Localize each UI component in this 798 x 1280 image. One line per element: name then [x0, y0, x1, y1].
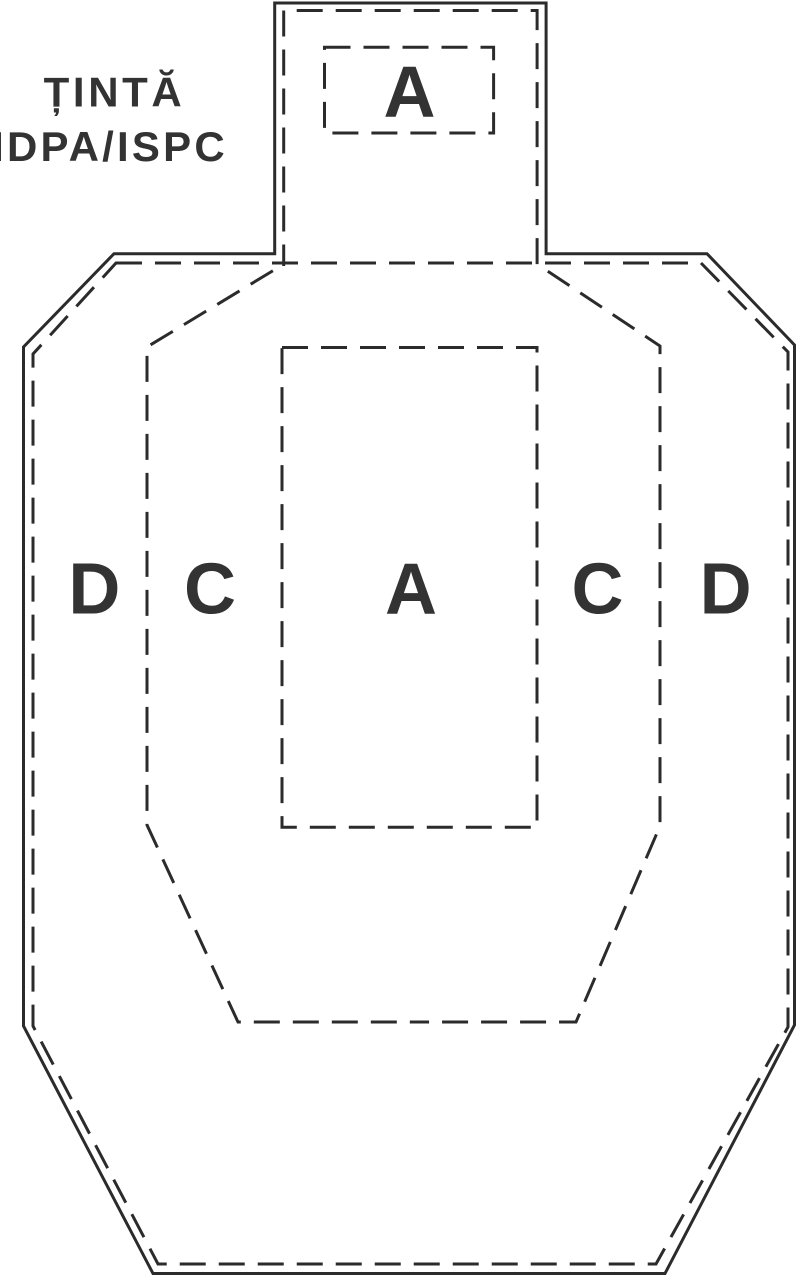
svg-text:C: C — [572, 550, 624, 630]
svg-text:D: D — [68, 550, 120, 630]
svg-text:IDPA/ISPC: IDPA/ISPC — [0, 123, 228, 170]
svg-text:ȚINTĂ: ȚINTĂ — [44, 69, 186, 117]
svg-text:A: A — [385, 550, 437, 630]
svg-text:D: D — [700, 550, 752, 630]
svg-text:A: A — [384, 53, 436, 133]
svg-text:C: C — [184, 550, 236, 630]
